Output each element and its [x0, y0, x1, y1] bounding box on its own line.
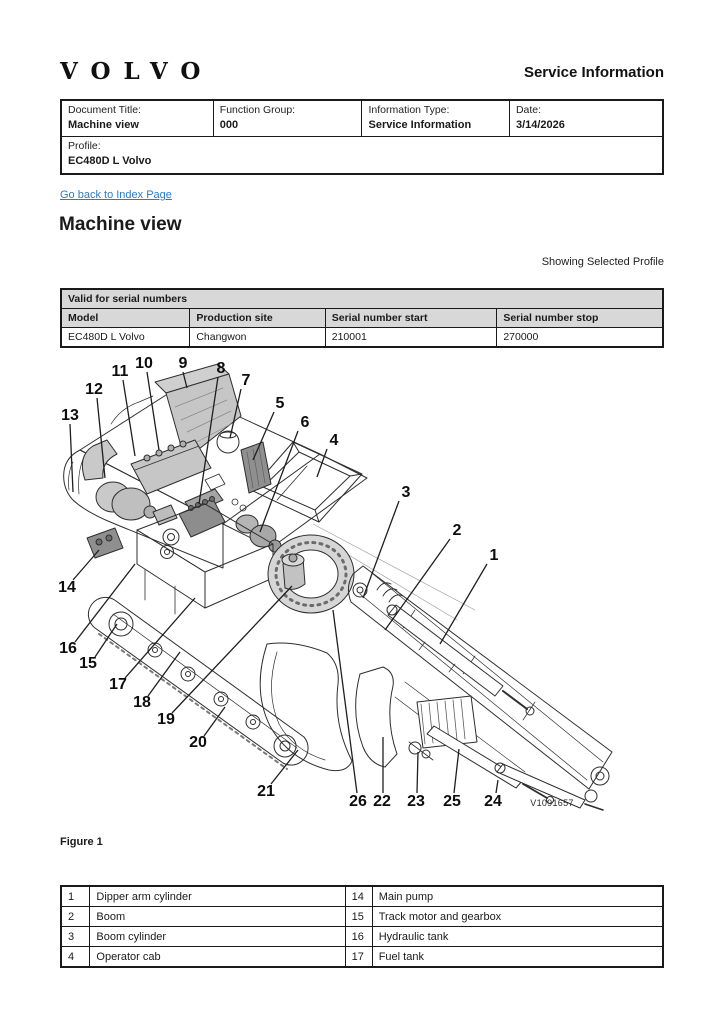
callout-26: 26	[349, 794, 367, 810]
profile-label: Profile:	[68, 140, 656, 154]
doc-title-value: Machine view	[68, 118, 207, 133]
model-value: EC480D L Volvo	[61, 328, 190, 348]
production-site-value: Changwon	[190, 328, 325, 348]
parts-table-row: 4Operator cab17Fuel tank	[61, 947, 663, 968]
callout-25: 25	[443, 794, 461, 810]
parts-table-row: 2Boom15Track motor and gearbox	[61, 907, 663, 927]
function-group-cell: Function Group: 000	[213, 100, 362, 137]
callout-6: 6	[301, 415, 310, 431]
callout-24: 24	[484, 794, 502, 810]
part-number-cell: 1	[61, 886, 90, 907]
part-number-cell: 3	[61, 927, 90, 947]
callout-1: 1	[490, 548, 499, 564]
header-title: Service Information	[524, 64, 664, 81]
callout-8: 8	[217, 361, 226, 377]
callout-14: 14	[58, 580, 76, 596]
profile-cell: Profile: EC480D L Volvo	[61, 137, 663, 174]
callout-11: 11	[112, 364, 129, 380]
part-number-cell: 17	[345, 947, 372, 968]
go-back-index-link[interactable]: Go back to Index Page	[60, 189, 172, 201]
function-group-value: 000	[220, 118, 356, 133]
information-type-label: Information Type:	[368, 104, 502, 118]
date-cell: Date: 3/14/2026	[509, 100, 663, 137]
serial-table-row: EC480D L Volvo Changwon 210001 270000	[61, 328, 663, 348]
parts-table-row: 1Dipper arm cylinder14Main pump	[61, 886, 663, 907]
excavator-diagram	[55, 352, 665, 822]
part-number-cell: 2	[61, 907, 90, 927]
showing-profile-note: Showing Selected Profile	[542, 256, 664, 268]
callout-19: 19	[157, 712, 175, 728]
doc-title-cell: Document Title: Machine view	[61, 100, 213, 137]
callout-21: 21	[257, 784, 275, 800]
document-info-table: Document Title: Machine view Function Gr…	[60, 99, 664, 175]
date-value: 3/14/2026	[516, 118, 656, 133]
callout-16: 16	[59, 641, 77, 657]
callout-17: 17	[109, 677, 127, 693]
information-type-value: Service Information	[368, 118, 502, 133]
serial-stop-value: 270000	[497, 328, 663, 348]
part-name-cell: Hydraulic tank	[372, 927, 663, 947]
part-name-cell: Boom cylinder	[90, 927, 345, 947]
part-number-cell: 4	[61, 947, 90, 968]
callout-5: 5	[276, 396, 285, 412]
part-name-cell: Boom	[90, 907, 345, 927]
profile-value: EC480D L Volvo	[68, 154, 656, 169]
part-name-cell: Dipper arm cylinder	[90, 886, 345, 907]
col-serial-stop: Serial number stop	[497, 309, 663, 328]
callout-12: 12	[85, 382, 103, 398]
callout-22: 22	[373, 794, 391, 810]
service-information-page: VOLVO Service Information Document Title…	[0, 0, 724, 1024]
volvo-logo: VOLVO	[60, 58, 213, 85]
part-name-cell: Track motor and gearbox	[372, 907, 663, 927]
serial-numbers-table: Valid for serial numbers Model Productio…	[60, 288, 664, 348]
part-number-cell: 16	[345, 927, 372, 947]
parts-table: 1Dipper arm cylinder14Main pump2Boom15Tr…	[60, 885, 664, 968]
callout-2: 2	[453, 523, 462, 539]
col-serial-start: Serial number start	[325, 309, 497, 328]
serial-start-value: 210001	[325, 328, 497, 348]
part-name-cell: Operator cab	[90, 947, 345, 968]
doc-title-label: Document Title:	[68, 104, 207, 118]
page-title: Machine view	[59, 214, 182, 236]
function-group-label: Function Group:	[220, 104, 356, 118]
parts-table-body: 1Dipper arm cylinder14Main pump2Boom15Tr…	[61, 886, 663, 967]
date-label: Date:	[516, 104, 656, 118]
col-production-site: Production site	[190, 309, 325, 328]
figure-canvas: V1091657 1234567891011121314151617181920…	[55, 352, 665, 822]
information-type-cell: Information Type: Service Information	[362, 100, 509, 137]
parts-table-row: 3Boom cylinder16Hydraulic tank	[61, 927, 663, 947]
part-name-cell: Main pump	[372, 886, 663, 907]
callout-4: 4	[330, 433, 339, 449]
callout-3: 3	[402, 485, 411, 501]
part-number-cell: 15	[345, 907, 372, 927]
figure-caption: Figure 1	[60, 836, 103, 848]
figure-watermark: V1091657	[530, 798, 573, 808]
callout-15: 15	[79, 656, 97, 672]
callout-23: 23	[407, 794, 425, 810]
callout-13: 13	[61, 408, 79, 424]
col-model: Model	[61, 309, 190, 328]
callout-20: 20	[189, 735, 207, 751]
part-name-cell: Fuel tank	[372, 947, 663, 968]
serial-table-title: Valid for serial numbers	[61, 289, 663, 309]
callout-7: 7	[242, 373, 251, 389]
part-number-cell: 14	[345, 886, 372, 907]
callout-10: 10	[135, 356, 153, 372]
callout-9: 9	[179, 356, 188, 372]
callout-18: 18	[133, 695, 151, 711]
